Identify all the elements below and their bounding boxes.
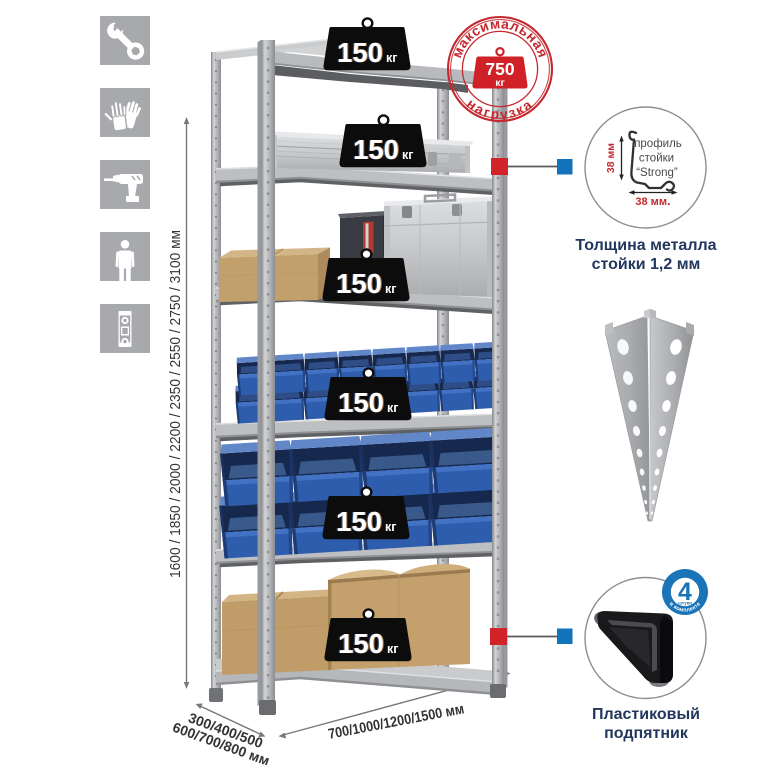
svg-text:“Strong”: “Strong” xyxy=(636,167,678,179)
svg-text:кг: кг xyxy=(495,77,505,89)
svg-text:подпятник: подпятник xyxy=(604,725,689,742)
svg-text:Пластиковый: Пластиковый xyxy=(592,706,700,723)
svg-text:1600 / 1850 / 2000 / 2200 / 23: 1600 / 1850 / 2000 / 2200 / 2350 / 2550 … xyxy=(167,230,184,578)
svg-text:Толщина металла: Толщина металла xyxy=(575,237,716,254)
svg-text:стойки: стойки xyxy=(639,153,674,165)
svg-text:38 мм: 38 мм xyxy=(605,143,617,173)
svg-text:штуки: штуки xyxy=(678,601,692,606)
svg-text:профиль: профиль xyxy=(634,138,682,150)
svg-text:38 мм.: 38 мм. xyxy=(635,193,670,208)
svg-text:стойки 1,2 мм: стойки 1,2 мм xyxy=(592,256,701,273)
